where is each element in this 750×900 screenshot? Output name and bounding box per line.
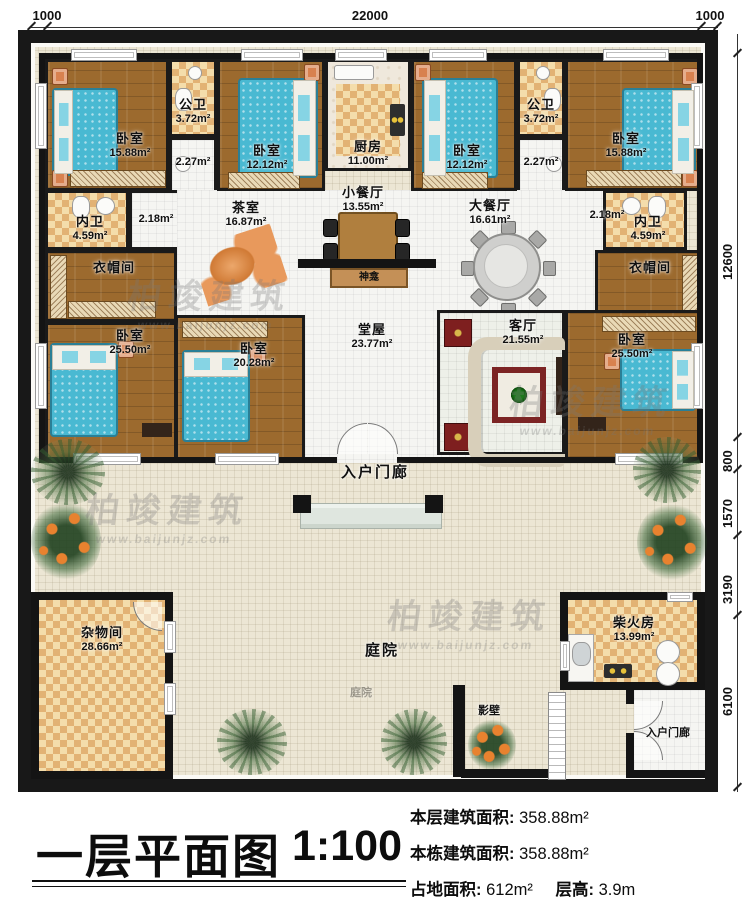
porch-pillar — [425, 495, 443, 513]
window — [71, 49, 137, 61]
room-corridor-227-right: 2.27m² — [517, 137, 565, 190]
floorplan-page: { "watermark": { "brand": "柏竣建筑", "url":… — [0, 0, 750, 900]
sink-icon — [334, 65, 374, 80]
dim-right-12600: 12600 — [720, 210, 735, 280]
wardrobe-hatch — [228, 172, 300, 189]
stat-building-area: 本栋建筑面积: 358.88m² — [410, 840, 740, 864]
room-bedroom-top-3: 卧室12.12m² — [411, 59, 517, 191]
stove-icon — [390, 104, 405, 136]
floorplan-canvas: 卧室15.88m² 公卫3.72m² 2.27m² 卧室12.12m² 厨房11… — [18, 30, 718, 792]
room-corridor-227-left: 2.27m² — [169, 137, 217, 190]
dining-table-round — [473, 233, 541, 301]
tv-cabinet — [556, 357, 562, 415]
room-bedroom-top-2: 卧室12.12m² — [217, 59, 325, 191]
wardrobe-hatch — [182, 321, 268, 338]
bed-headboard — [54, 90, 73, 174]
room-kitchen: 厨房11.00m² — [325, 59, 411, 171]
room-inner-bath-right: 内卫4.59m² — [603, 190, 687, 250]
shower-icon — [188, 66, 202, 80]
dim-right-1570: 1570 — [720, 480, 735, 528]
speaker-cabinet — [444, 319, 472, 347]
shrine-altar: 神龛 — [330, 268, 408, 288]
stove-icon — [604, 664, 632, 678]
chair — [543, 261, 556, 276]
porch-pillar — [293, 495, 311, 513]
label-porch-side: 入户门廊 — [631, 727, 705, 739]
room-living: 客厅21.55m² — [437, 310, 565, 455]
door-gap — [560, 641, 570, 671]
wardrobe-hatch — [602, 316, 696, 332]
window — [215, 453, 279, 465]
label-porch-main: 入户门廊 — [323, 465, 427, 482]
room-bedroom-top-right: 卧室15.88m² — [565, 59, 703, 191]
plant — [468, 719, 516, 771]
label-main-hall: 堂屋23.77m² — [331, 323, 413, 350]
walkway-hatch — [548, 692, 566, 780]
nightstand — [52, 68, 68, 85]
basin-icon — [96, 197, 115, 215]
nightstand — [415, 64, 431, 81]
chair — [395, 219, 410, 237]
room-public-bath-right: 公卫3.72m² — [517, 59, 565, 137]
room-cloak-left: 衣帽间 — [45, 250, 177, 322]
nightstand — [304, 64, 320, 81]
window — [603, 49, 669, 61]
label-dining-small: 小餐厅13.55m² — [308, 186, 418, 213]
room-inner-bath-left: 内卫4.59m² — [45, 190, 129, 250]
title-underline — [32, 880, 406, 887]
chair — [323, 219, 338, 237]
room-corridor-218-left: 2.18m² — [129, 190, 177, 250]
fruit-tree — [637, 503, 707, 581]
screen-wall — [453, 685, 465, 777]
drawing-scale: 1:100 — [292, 822, 402, 871]
desk-icon — [142, 423, 172, 437]
shower-icon — [536, 66, 550, 80]
room-bedroom-mid-center: 卧室20.28m² — [175, 315, 305, 461]
wok-burner-icon — [656, 662, 680, 686]
sink-icon — [572, 642, 591, 666]
desk-icon — [578, 417, 606, 431]
room-bedroom-mid-right: 卧室25.50m² — [565, 310, 703, 460]
dim-right-6100: 6100 — [720, 664, 735, 716]
wardrobe-hatch — [70, 170, 166, 187]
window — [335, 49, 387, 61]
wardrobe-hatch — [586, 170, 682, 187]
label-courtyard: 庭院 — [337, 643, 427, 660]
room-firewood: 柴火房13.99m² — [560, 592, 705, 690]
window — [241, 49, 303, 61]
dim-right-800: 800 — [720, 432, 735, 472]
wok-burner-icon — [656, 640, 680, 664]
label-dining-large: 大餐厅16.61m² — [435, 199, 545, 226]
side-porch-wall — [626, 733, 634, 778]
room-public-bath-left: 公卫3.72m² — [169, 59, 217, 137]
stat-floor-area: 本层建筑面积: 358.88m² — [410, 804, 740, 828]
porch-steps — [300, 503, 442, 529]
window — [35, 83, 47, 149]
dim-top-right: 1000 — [682, 8, 738, 23]
side-porch-wall — [626, 690, 634, 704]
label-courtyard-ghost: 庭院 — [321, 687, 401, 699]
fruit-tree — [31, 501, 101, 581]
window — [667, 592, 693, 602]
shrine-wall — [298, 259, 436, 268]
door-gap — [164, 683, 176, 715]
palm-tree — [217, 709, 287, 775]
wardrobe-hatch — [68, 301, 156, 318]
palm-tree — [633, 437, 701, 503]
window — [35, 343, 47, 409]
room-storage: 杂物间28.66m² — [31, 592, 173, 779]
watermark: 柏竣建筑www.baijunjz.com — [81, 483, 254, 546]
bed-headboard — [672, 90, 694, 174]
label-screen-wall: 影壁 — [465, 705, 513, 717]
top-dimension-line — [30, 27, 718, 28]
door-gap — [164, 621, 176, 653]
drawing-title: 一层平面图 — [36, 818, 281, 887]
window — [429, 49, 487, 61]
stat-land-area: 占地面积: 612m² 层高: 3.9m — [410, 876, 740, 900]
title-block: 一层平面图 1:100 本层建筑面积: 358.88m² 本栋建筑面积: 358… — [0, 796, 750, 900]
wardrobe-hatch — [50, 255, 67, 319]
right-dimension-line — [737, 34, 738, 792]
dim-top-center: 22000 — [325, 8, 415, 23]
palm-tree — [381, 709, 447, 775]
palm-tree — [31, 439, 105, 505]
side-porch-wall — [634, 770, 705, 778]
room-bedroom-top-left: 卧室15.88m² — [45, 59, 169, 191]
dim-top-left: 1000 — [22, 8, 72, 23]
label-tea-room: 茶室16.87m² — [191, 201, 301, 228]
rug-with-table — [492, 367, 546, 423]
screen-wall-base — [461, 769, 561, 778]
dim-right-3190: 3190 — [720, 552, 735, 604]
